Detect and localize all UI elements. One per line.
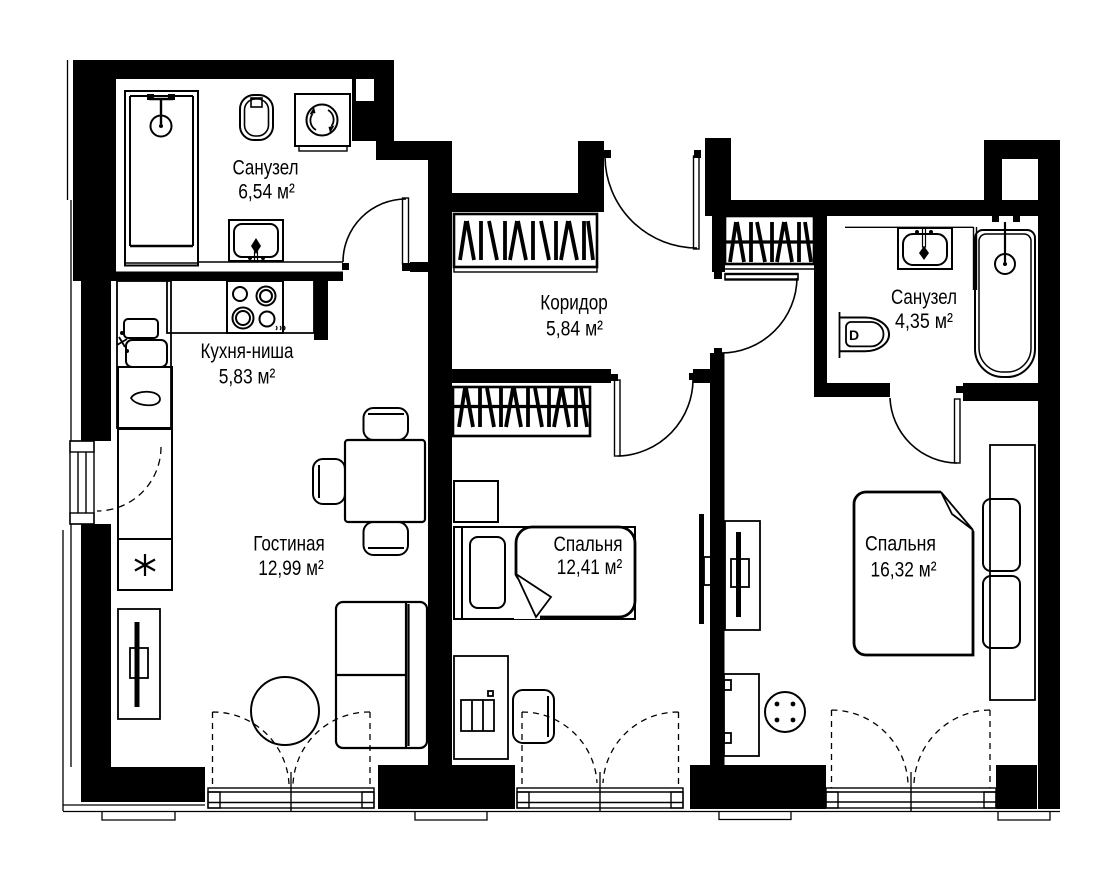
svg-text:16,32 м²: 16,32 м² (871, 559, 937, 582)
svg-text:D: D (849, 327, 859, 343)
svg-text:Гостиная: Гостиная (253, 533, 325, 556)
svg-text:4,35 м²: 4,35 м² (895, 310, 953, 333)
svg-text:5,84 м²: 5,84 м² (546, 318, 603, 341)
svg-text:12,99 м²: 12,99 м² (258, 557, 324, 580)
svg-text:Спальня: Спальня (554, 533, 623, 556)
svg-text:Кухня-ниша: Кухня-ниша (201, 340, 294, 363)
svg-text:12,41 м²: 12,41 м² (557, 556, 623, 579)
svg-text:Коридор: Коридор (540, 292, 608, 315)
svg-text:Санузел: Санузел (233, 157, 299, 180)
svg-text:5,83 м²: 5,83 м² (219, 366, 276, 389)
svg-text:6,54 м²: 6,54 м² (238, 181, 295, 204)
svg-text:Санузел: Санузел (891, 286, 957, 309)
svg-text:Спальня: Спальня (865, 533, 936, 556)
